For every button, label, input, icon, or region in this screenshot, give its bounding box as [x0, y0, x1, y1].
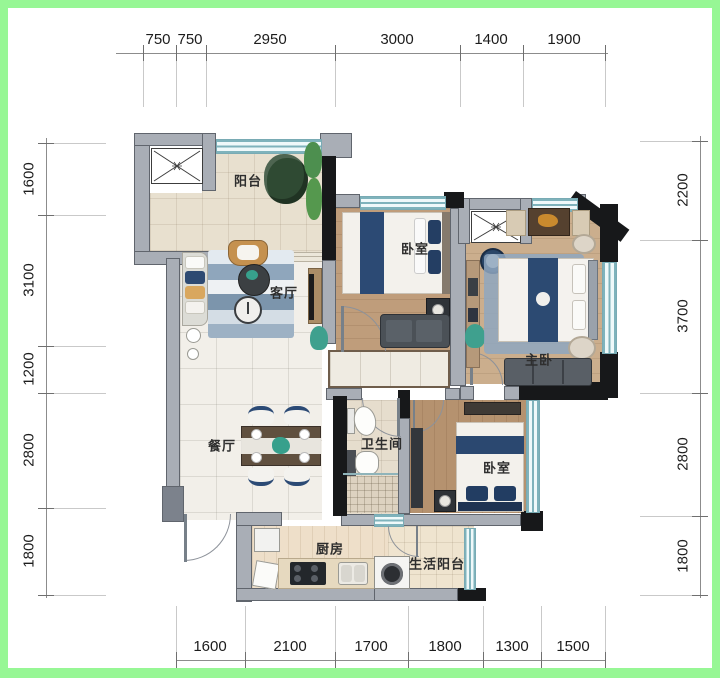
dim-label: 2100 — [262, 638, 318, 655]
balcony-plant — [264, 154, 308, 204]
burner — [294, 565, 301, 572]
master-bench-seam — [562, 360, 564, 384]
dim-label: 1600 — [182, 638, 238, 655]
dim-label: 2800 — [21, 433, 38, 466]
dim-label: 1500 — [545, 638, 601, 655]
sofa-pillow — [185, 256, 205, 269]
kitchen-utility-door-leaf — [416, 526, 418, 557]
entry-door-leaf — [184, 514, 187, 562]
wall-black — [333, 396, 347, 516]
dim-label: 1400 — [463, 31, 519, 48]
entry-door-arc — [184, 514, 231, 561]
corridor-floor — [328, 350, 450, 388]
bed1-runner — [360, 212, 384, 294]
dim-label: 1800 — [675, 539, 692, 572]
coffee-table — [238, 264, 270, 296]
dim-extension — [54, 393, 106, 394]
dim-extension — [176, 606, 177, 652]
master-pillow — [572, 300, 586, 330]
bed1-headboard — [442, 212, 450, 294]
master-window-east — [602, 262, 617, 354]
master-plant — [465, 324, 485, 348]
dim-line-left — [46, 138, 47, 598]
kitchen-cart — [252, 560, 280, 590]
dim-tick — [38, 508, 54, 509]
coffee-table-plant — [246, 270, 258, 280]
dim-tick — [38, 393, 54, 394]
dim-extension — [541, 606, 542, 652]
column — [322, 156, 336, 260]
dim-tick — [176, 652, 177, 668]
bed2-cabinet — [411, 428, 423, 508]
dim-extension — [640, 393, 692, 394]
master-pillow — [572, 264, 586, 294]
sink-basin — [355, 451, 379, 475]
dim-extension — [54, 215, 106, 216]
dim-tick — [692, 141, 708, 142]
floorplan-canvas: 阳台客厅卧室主卧餐厅卫生间卧室厨房生活阳台 — [8, 8, 712, 668]
balcony-shrub — [306, 178, 322, 220]
wall — [166, 258, 180, 488]
dim-tick — [38, 143, 54, 144]
wall — [162, 486, 184, 522]
dim-tick — [38, 215, 54, 216]
dim-label: 3000 — [369, 31, 425, 48]
dim-tick — [335, 652, 336, 668]
ac-unit-icon — [151, 148, 203, 184]
dim-tick — [605, 652, 606, 668]
bedroom1-sofa-seat — [416, 320, 442, 342]
dim-tick — [692, 516, 708, 517]
dim-label: 1800 — [417, 638, 473, 655]
floorplan-page: 阳台客厅卧室主卧餐厅卫生间卧室厨房生活阳台 750750295030001400… — [0, 0, 720, 678]
dim-extension — [605, 606, 606, 652]
dim-label: 3100 — [21, 263, 38, 296]
plate — [299, 452, 310, 463]
dim-extension — [54, 346, 106, 347]
plate — [251, 452, 262, 463]
wall — [236, 512, 282, 526]
room-label-bedroom2: 卧室 — [483, 458, 511, 477]
window-seat-cushion — [572, 210, 590, 236]
bedroom2-window — [526, 400, 540, 513]
dim-tick — [523, 45, 524, 61]
dim-label: 1900 — [536, 31, 592, 48]
armchair-cushion — [237, 245, 259, 260]
room-label-master: 主卧 — [525, 350, 553, 369]
dim-line-right — [700, 136, 701, 598]
dim-tick — [692, 240, 708, 241]
dim-extension — [54, 143, 106, 144]
dim-extension — [605, 61, 606, 107]
dim-label: 3700 — [675, 299, 692, 332]
runner-medallion — [536, 292, 550, 306]
dim-tick — [692, 393, 708, 394]
room-label-bedroom1: 卧室 — [401, 239, 429, 258]
burner — [311, 575, 318, 582]
dim-extension — [640, 240, 692, 241]
centerpiece-plant — [272, 437, 290, 454]
bed2-pillow — [494, 486, 516, 501]
bed2-footer — [458, 502, 522, 511]
wall — [374, 588, 458, 601]
plate — [251, 429, 262, 440]
dim-extension — [460, 61, 461, 107]
room-label-kitchen: 厨房 — [316, 539, 344, 558]
wardrobe — [464, 402, 521, 415]
dim-extension — [640, 516, 692, 517]
dining-chair — [248, 406, 274, 425]
dim-extension — [335, 61, 336, 107]
dining-chair — [284, 467, 310, 486]
dining-chair — [248, 467, 274, 486]
dim-tick — [335, 45, 336, 61]
dim-extension — [245, 606, 246, 652]
dim-tick — [460, 45, 461, 61]
tv — [309, 274, 314, 320]
bathroom-door-leaf — [397, 398, 400, 436]
dim-label: 2800 — [675, 437, 692, 470]
column — [600, 204, 618, 262]
dim-label: 2950 — [242, 31, 298, 48]
master-headboard — [588, 260, 598, 340]
column — [444, 192, 464, 208]
dim-line-top — [116, 53, 608, 54]
lamp — [439, 495, 451, 507]
dim-label: 750 — [162, 31, 218, 48]
shower-glass — [343, 473, 398, 475]
bed2-pillow — [466, 486, 488, 501]
window-seat-cushion — [506, 210, 526, 236]
wall — [341, 514, 521, 526]
fridge — [254, 528, 280, 552]
washer-door — [381, 563, 403, 585]
dim-tick — [245, 652, 246, 668]
dim-extension — [408, 606, 409, 652]
wall — [460, 386, 474, 400]
dim-label: 2200 — [675, 173, 692, 206]
vanity-item — [468, 308, 478, 322]
dim-extension — [54, 595, 106, 596]
burner — [294, 575, 301, 582]
dim-label: 1800 — [21, 534, 38, 567]
pouf — [568, 336, 596, 360]
utility-window — [464, 528, 476, 590]
sink-bowl — [341, 565, 352, 582]
dim-tick — [38, 346, 54, 347]
dim-extension — [176, 61, 177, 107]
bed1-pillow — [428, 250, 441, 274]
dim-tick — [408, 652, 409, 668]
room-label-bathroom: 卫生间 — [361, 434, 403, 453]
bedroom1-door-leaf — [341, 306, 344, 352]
room-label-balcony: 阳台 — [234, 171, 262, 190]
room-label-dining: 餐厅 — [208, 436, 236, 455]
sink-bowl — [354, 565, 365, 582]
dim-label: 1700 — [343, 638, 399, 655]
dim-tick — [605, 45, 606, 61]
dim-label: 1200 — [21, 352, 38, 385]
balcony-shrub — [304, 142, 322, 178]
dim-tick — [38, 595, 54, 596]
dim-extension — [640, 595, 692, 596]
dim-extension — [54, 508, 106, 509]
wall — [320, 133, 352, 158]
column — [521, 511, 543, 531]
sofa-pillow — [185, 271, 205, 284]
bedroom1-window — [360, 196, 446, 210]
dim-extension — [335, 606, 336, 652]
sofa-pillow — [185, 286, 205, 299]
wall — [202, 133, 216, 191]
wall-decor — [186, 328, 201, 343]
dim-label: 1300 — [484, 638, 540, 655]
room-label-utility: 生活阳台 — [409, 554, 465, 573]
pouf — [572, 234, 596, 254]
dim-extension — [640, 141, 692, 142]
vanity-item — [468, 278, 478, 296]
wall — [134, 133, 150, 265]
dim-tick — [692, 595, 708, 596]
plate — [299, 429, 310, 440]
bed2-band — [456, 436, 524, 454]
side-table-detail — [247, 302, 249, 314]
cabinet-decor — [538, 214, 558, 227]
sofa-pillow — [185, 301, 205, 314]
wall — [445, 388, 460, 400]
room-label-living: 客厅 — [270, 283, 298, 302]
dim-extension — [143, 61, 144, 107]
shower-area — [343, 476, 398, 513]
dim-label: 1600 — [21, 162, 38, 195]
burner — [311, 565, 318, 572]
wall — [334, 194, 360, 208]
bed1-pillow — [428, 220, 441, 244]
bedroom1-sofa-seat — [386, 320, 412, 342]
dim-tick — [541, 652, 542, 668]
corridor-plant — [310, 326, 328, 350]
dining-chair — [284, 406, 310, 425]
dim-extension — [206, 61, 207, 107]
dim-extension — [523, 61, 524, 107]
wall-decor — [187, 348, 199, 360]
